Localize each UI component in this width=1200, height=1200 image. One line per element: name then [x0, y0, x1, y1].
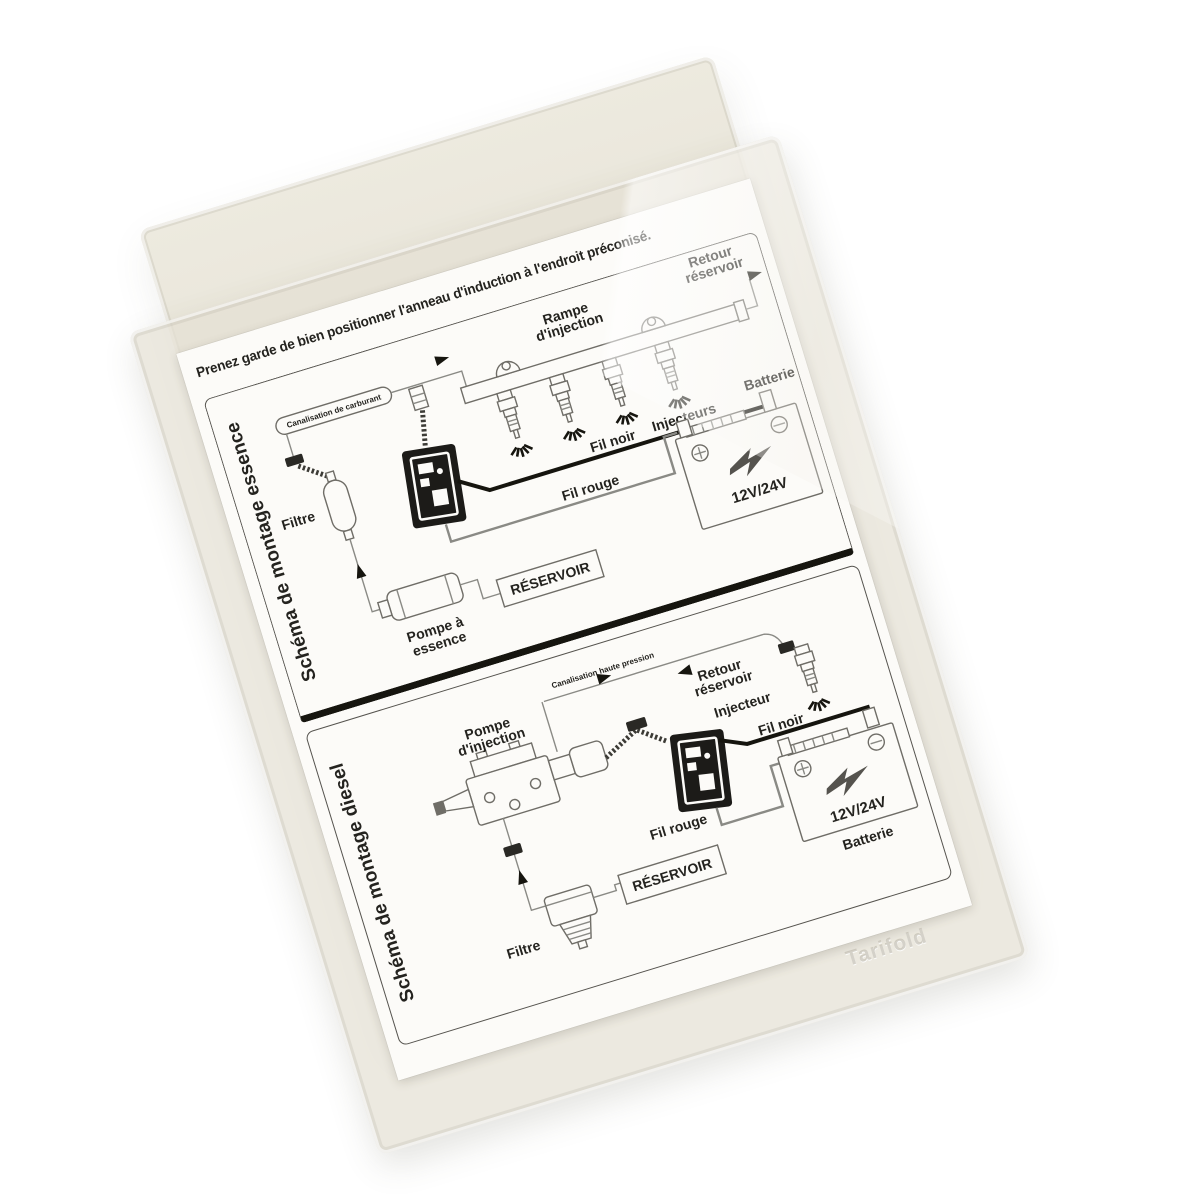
injector — [493, 389, 534, 460]
flow-up-arrow-icon — [353, 563, 367, 579]
diesel-injecteur-label: Injecteur — [712, 688, 773, 721]
essence-batterie-label: Batterie — [742, 363, 797, 394]
diesel-filter — [543, 884, 606, 954]
sleeve-stack: Prenez garde de bien positionner l'annea… — [128, 134, 1030, 1155]
induction-device — [401, 443, 467, 528]
injector — [546, 372, 587, 443]
injection-pump — [414, 689, 614, 837]
fuel-filter — [318, 469, 361, 543]
essence-filtre-label: Filtre — [280, 508, 318, 533]
diesel-filtre-label: Filtre — [505, 937, 543, 962]
injector — [598, 356, 639, 427]
essence-side-label: Schéma de montage essence — [222, 419, 321, 683]
injector — [790, 643, 831, 714]
diesel-canalisation-label: Canalisation haute pression — [550, 651, 655, 691]
essence-canalisation-label: Canalisation de carburant — [286, 392, 383, 429]
return-arrow-icon — [676, 664, 693, 679]
flow-up-arrow-icon — [514, 869, 528, 885]
hose-coupler — [285, 453, 305, 467]
product-photo: Prenez garde de bien positionner l'annea… — [0, 0, 1200, 1200]
injector — [651, 340, 692, 411]
return-arrow-icon — [747, 267, 763, 281]
flow-arrow-icon — [434, 352, 450, 366]
diesel-fil-rouge-label: Fil rouge — [648, 810, 709, 843]
diesel-side-label: Schéma de montage diesel — [326, 760, 419, 1004]
